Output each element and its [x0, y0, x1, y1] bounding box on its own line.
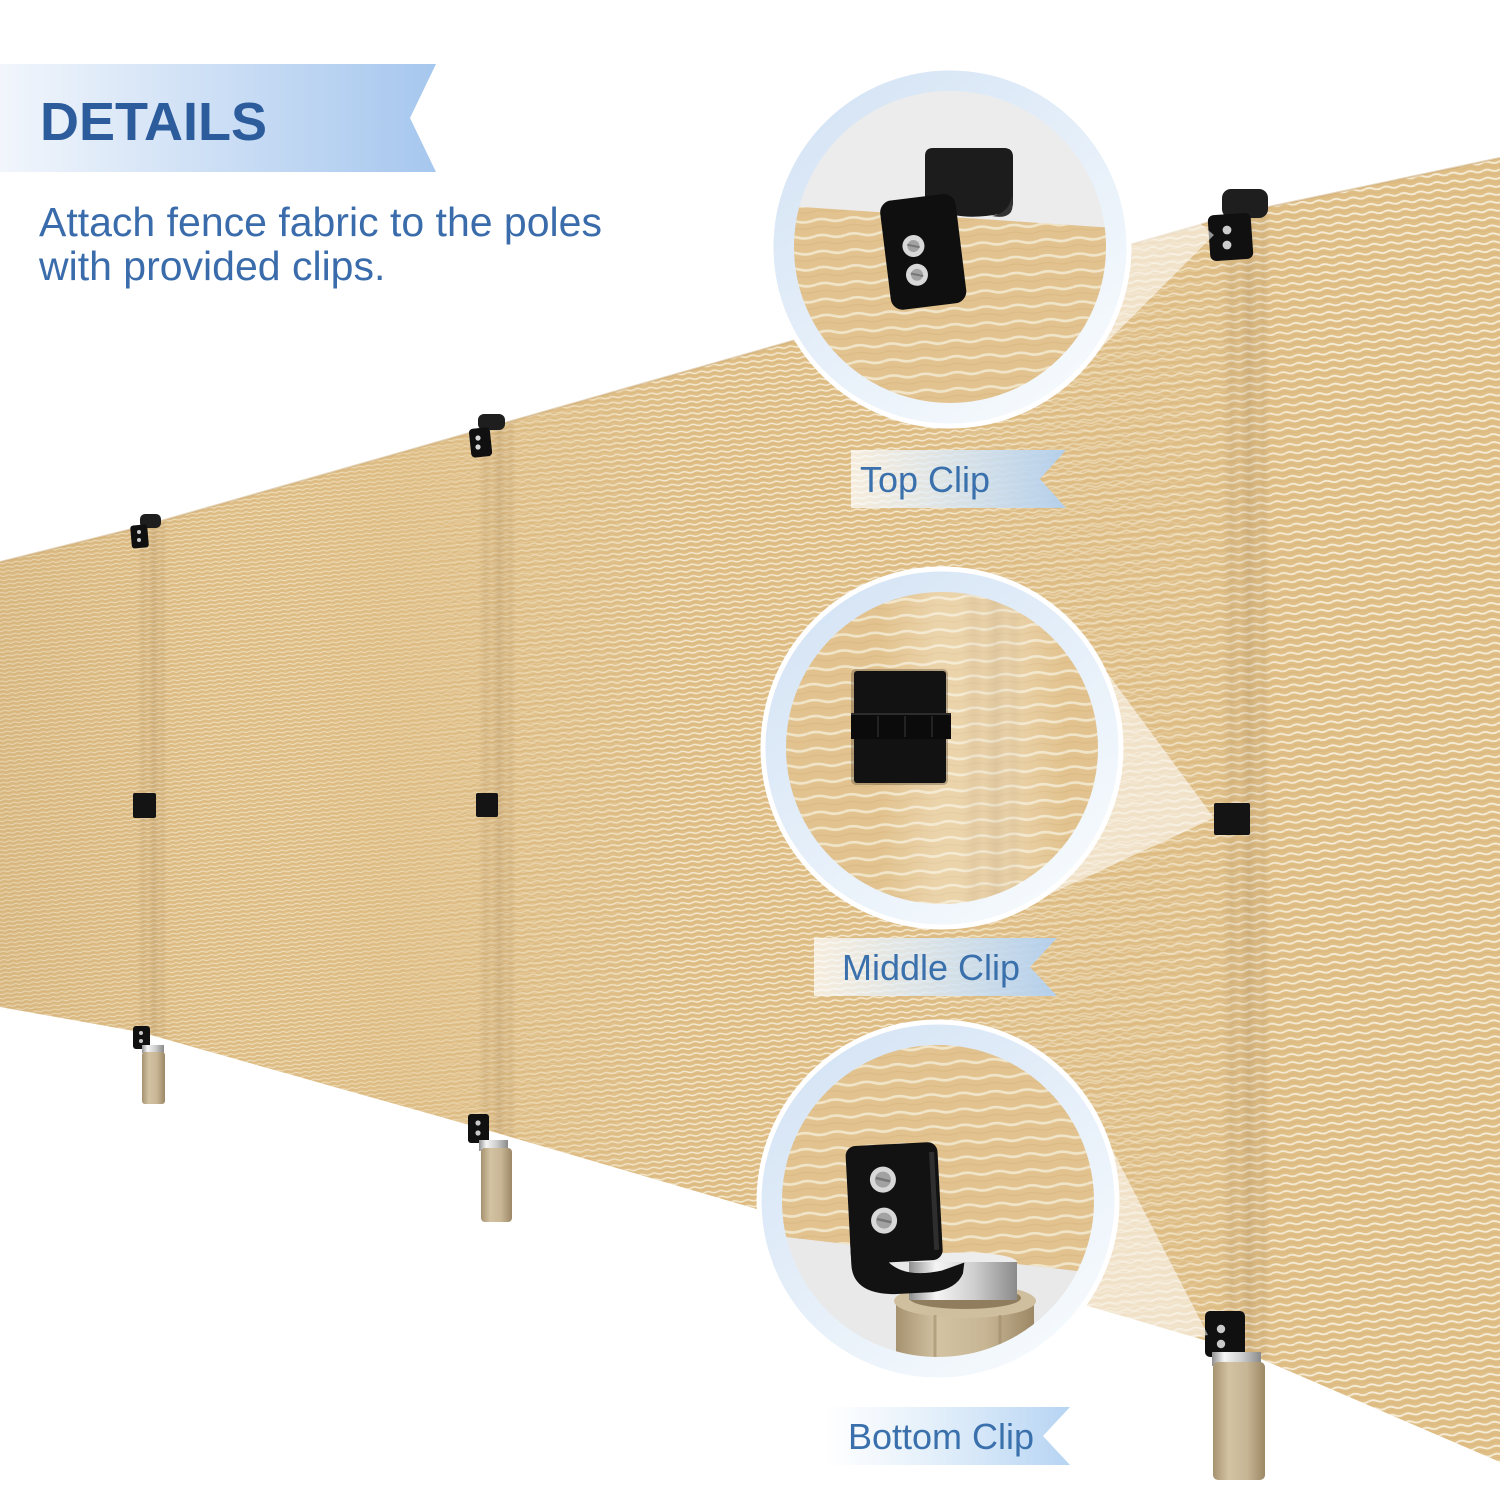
svg-text:Bottom Clip: Bottom Clip — [848, 1416, 1034, 1457]
svg-text:with provided clips.: with provided clips. — [38, 243, 385, 289]
svg-text:Attach fence fabric to the pol: Attach fence fabric to the poles — [39, 199, 602, 245]
svg-text:Top Clip: Top Clip — [860, 459, 990, 500]
svg-text:Middle Clip: Middle Clip — [842, 947, 1020, 988]
svg-text:DETAILS: DETAILS — [40, 92, 267, 152]
